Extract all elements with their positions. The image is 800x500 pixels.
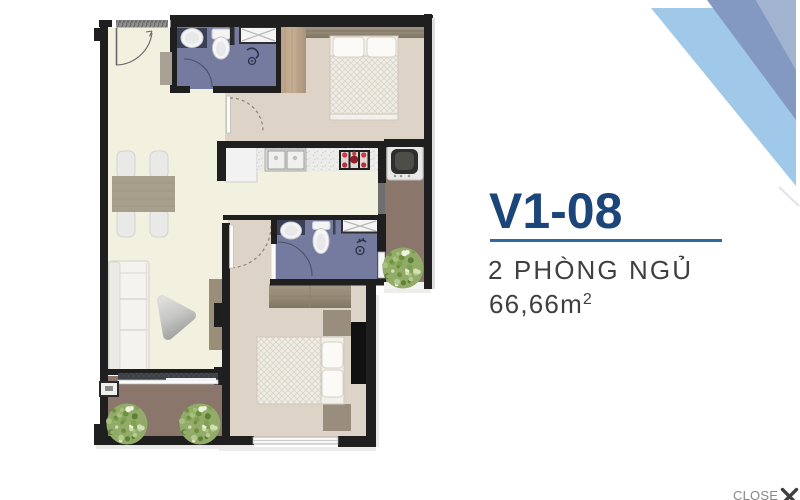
svg-text:66,66m2: 66,66m2 (489, 289, 593, 319)
svg-text:CLOSE: CLOSE (733, 488, 778, 500)
svg-text:V1-08: V1-08 (489, 183, 622, 239)
svg-text:2 PHÒNG NGỦ: 2 PHÒNG NGỦ (488, 254, 693, 285)
